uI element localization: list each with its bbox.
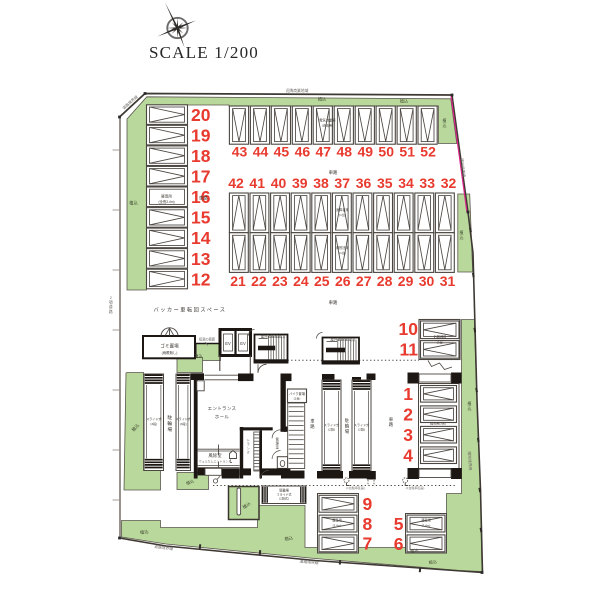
svg-text:12: 12 [191,269,211,289]
svg-text:(1台): (1台) [339,212,346,217]
svg-text:場: 場 [345,428,350,435]
svg-text:15: 15 [191,208,211,228]
svg-text:道: 道 [109,304,113,309]
svg-text:(3.4m): (3.4m) [333,524,342,528]
svg-text:21: 21 [230,273,246,289]
svg-text:植込: 植込 [318,96,326,102]
svg-text:車路: 車路 [329,299,338,306]
svg-text:込: 込 [443,122,447,128]
svg-text:(3段): (3段) [150,421,157,426]
svg-text:39: 39 [292,175,308,191]
svg-text:バッカー車転回スペース: バッカー車転回スペース [154,306,227,314]
svg-text:26: 26 [335,273,351,289]
svg-text:(3.4m): (3.4m) [422,524,431,528]
svg-text:車路: 車路 [199,195,208,202]
svg-text:軽専用: 軽専用 [332,518,342,523]
svg-text:25: 25 [314,273,330,289]
svg-text:30: 30 [419,273,435,289]
svg-text:7: 7 [363,534,373,554]
svg-text:22: 22 [251,273,267,289]
svg-text:13: 13 [191,249,211,269]
svg-text:(充電用): (充電用) [322,123,333,128]
svg-text:スライド式: スライド式 [146,416,161,421]
svg-text:バイク置場: バイク置場 [289,391,306,396]
svg-text:路: 路 [109,309,113,314]
svg-text:スライド式: スライド式 [354,422,369,427]
svg-text:50: 50 [378,144,394,160]
svg-text:3: 3 [403,425,413,445]
svg-text:(1台): (1台) [339,250,346,255]
svg-text:(2段): (2段) [328,427,335,432]
svg-text:5: 5 [394,514,404,534]
svg-text:(2段): (2段) [358,427,365,432]
svg-text:43: 43 [232,144,248,160]
svg-text:路: 路 [310,423,315,430]
svg-text:荷捌き用: 荷捌き用 [336,245,349,250]
svg-text:(雨覆無し): (雨覆無し) [162,350,178,355]
svg-text:ク: ク [247,450,250,455]
svg-text:(2段式): (2段式) [279,496,289,501]
svg-text:2: 2 [110,296,112,300]
svg-text:ゴミ置場: ゴミ置場 [160,343,179,350]
svg-text:47: 47 [316,144,332,160]
svg-text:お客様用: お客様用 [434,334,447,339]
svg-text:(全長3.4m): (全長3.4m) [158,199,174,204]
svg-text:屋外避難階段(1): 屋外避難階段(1) [261,334,286,339]
svg-text:27: 27 [356,273,372,289]
svg-text:32: 32 [441,175,457,191]
svg-text:40: 40 [271,175,287,191]
svg-text:植込: 植込 [400,98,408,104]
svg-text:33: 33 [419,175,435,191]
svg-text:植込: 植込 [428,558,437,565]
svg-text:電気自動車: 電気自動車 [319,118,336,123]
svg-text:屋外避難階段(2): 屋外避難階段(2) [331,337,356,342]
svg-text:スライド式: スライド式 [175,416,190,421]
svg-text:軽専用: 軽専用 [161,193,172,198]
svg-text:軽専用: 軽専用 [421,518,431,523]
svg-text:EV: EV [225,341,231,346]
svg-text:31: 31 [440,273,456,289]
svg-text:48: 48 [337,144,353,160]
svg-text:20: 20 [191,105,211,125]
svg-text:2: 2 [403,405,413,425]
svg-text:ウェルカムエントランス: ウェルカムエントランス [199,459,232,464]
svg-text:軽専用(3台): 軽専用(3台) [430,421,446,426]
svg-text:植込: 植込 [195,353,203,359]
svg-text:24: 24 [293,273,309,289]
svg-text:28: 28 [377,273,393,289]
svg-text:植込: 植込 [410,546,419,553]
svg-text:込: 込 [468,405,472,411]
svg-text:(2台): (2台) [437,339,444,344]
svg-text:EV: EV [240,341,246,346]
svg-text:4: 4 [403,446,413,466]
svg-text:スライド式: スライド式 [324,422,339,427]
svg-text:(2台): (2台) [294,395,301,400]
svg-text:場: 場 [167,426,172,433]
svg-text:18: 18 [191,146,211,166]
svg-text:41: 41 [249,175,265,191]
svg-text:51: 51 [399,144,415,160]
svg-text:室: 室 [276,445,279,450]
svg-text:11: 11 [400,339,419,359]
svg-text:19: 19 [191,126,211,146]
svg-text:込: 込 [460,234,464,240]
svg-text:ホール: ホール [215,415,230,420]
svg-text:23: 23 [272,273,288,289]
svg-text:46: 46 [295,144,311,160]
svg-text:近隣商業地域: 近隣商業地域 [286,88,309,93]
svg-text:45: 45 [274,144,290,160]
svg-text:路: 路 [389,421,394,428]
svg-text:17: 17 [191,167,210,187]
svg-text:身障者用: 身障者用 [336,207,349,212]
svg-text:36: 36 [356,175,372,191]
svg-text:9: 9 [363,494,373,514]
svg-text:42: 42 [228,175,244,191]
svg-text:植込: 植込 [129,200,138,207]
svg-text:37: 37 [334,175,350,191]
svg-text:輪: 輪 [167,420,172,427]
svg-text:駐: 駐 [167,414,172,421]
svg-text:(1台駐車区画): (1台駐車区画) [406,485,425,490]
svg-text:(3段): (3段) [180,421,187,426]
svg-text:35: 35 [377,175,393,191]
svg-text:34: 34 [398,175,414,191]
svg-text:44: 44 [253,144,269,160]
svg-text:6: 6 [394,534,404,554]
svg-text:風除室: 風除室 [208,452,222,459]
svg-text:車路: 車路 [329,169,338,176]
svg-text:49: 49 [358,144,374,160]
svg-text:植栽の範囲: 植栽の範囲 [199,337,215,342]
svg-text:項: 項 [109,300,113,305]
svg-text:8: 8 [363,514,373,534]
svg-text:29: 29 [398,273,414,289]
svg-text:(1台駐車区画): (1台駐車区画) [346,485,365,490]
svg-text:38: 38 [313,175,329,191]
svg-text:SCALE 1/200: SCALE 1/200 [149,43,259,62]
svg-text:52: 52 [420,144,436,160]
svg-text:1: 1 [403,384,413,404]
svg-text:14: 14 [191,228,211,248]
svg-text:10: 10 [399,319,419,339]
